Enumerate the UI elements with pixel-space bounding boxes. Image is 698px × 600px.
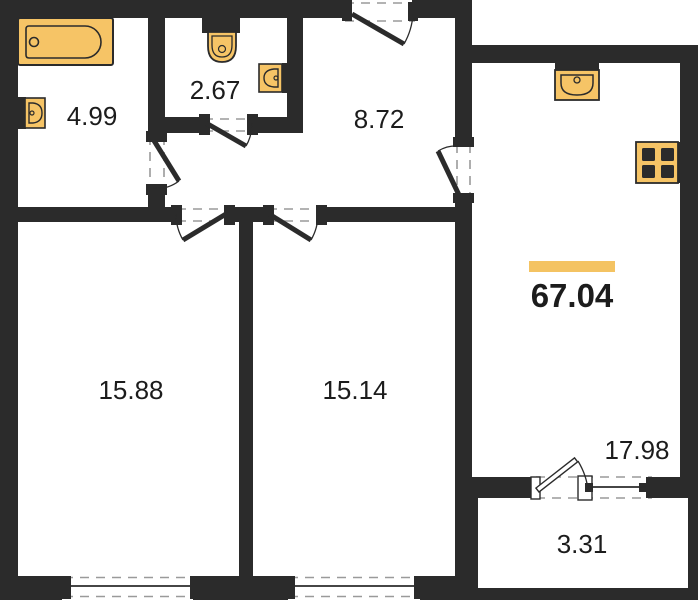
wall-sink-icon xyxy=(18,97,45,129)
window-post xyxy=(646,477,658,498)
room-label-bathroom: 4.99 xyxy=(67,101,118,131)
wall-segment xyxy=(148,117,203,133)
bathtub-icon xyxy=(18,18,113,65)
kitchen-door xyxy=(438,137,474,203)
room-label-room-left: 15.88 xyxy=(98,375,163,405)
room-label-wc: 2.67 xyxy=(190,75,241,105)
room-label-balcony: 3.31 xyxy=(557,529,608,559)
wall-segment xyxy=(253,117,303,133)
floor-plan-drawing: 4.99 2.67 8.72 15.88 15.14 17.98 3.31 67… xyxy=(0,0,698,600)
window-post xyxy=(414,576,426,599)
wall-segment xyxy=(193,576,288,600)
wall-segment xyxy=(680,45,698,478)
floor-plan: 4.99 2.67 8.72 15.88 15.14 17.98 3.31 67… xyxy=(0,0,698,600)
wall-segment xyxy=(472,477,535,498)
wall-segment xyxy=(239,222,253,576)
door-leaf xyxy=(269,214,311,240)
room-label-kitchen-living: 17.98 xyxy=(604,435,669,465)
wall-segment xyxy=(322,207,455,222)
bathroom-door xyxy=(146,131,179,195)
wall-segment xyxy=(455,195,472,478)
stove-burner xyxy=(661,165,674,178)
wc-sink-icon xyxy=(259,63,290,93)
room-left-door xyxy=(171,205,235,240)
door-leaf xyxy=(438,151,459,195)
stove-burner xyxy=(661,148,674,161)
window-post xyxy=(283,576,295,599)
room-middle-door xyxy=(263,205,327,240)
wall-segment xyxy=(688,478,698,600)
wc-door xyxy=(199,114,258,146)
room-label-room-middle: 15.14 xyxy=(322,375,387,405)
total-area-block: 67.04 xyxy=(529,261,615,314)
door-leaf xyxy=(183,214,226,240)
window-post xyxy=(59,576,71,599)
window-room-left xyxy=(59,576,202,599)
stove-burner xyxy=(642,165,655,178)
door-leaf xyxy=(352,14,404,44)
toilet-tank xyxy=(202,18,240,33)
wall-segment xyxy=(0,0,18,600)
balcony-door-leaf xyxy=(536,458,578,492)
wall-segment xyxy=(656,477,688,498)
wall-segment xyxy=(455,0,472,145)
window-post-nub xyxy=(585,483,593,492)
sink-mount xyxy=(282,63,290,93)
total-area-label: 67.04 xyxy=(531,277,614,314)
wall-segment xyxy=(0,0,352,18)
toilet-icon xyxy=(202,18,240,62)
door-leaf xyxy=(206,123,246,146)
door-jamb xyxy=(342,2,352,21)
wall-segment xyxy=(477,588,698,600)
accent-bar xyxy=(529,261,615,272)
window-post xyxy=(190,576,202,599)
entrance-door xyxy=(342,2,418,44)
door-leaf xyxy=(153,139,179,181)
sink-mount xyxy=(555,59,599,70)
wall-segment xyxy=(0,576,62,600)
stove-icon xyxy=(636,142,684,183)
kitchen-sink-icon xyxy=(555,59,599,100)
wall-segment xyxy=(18,207,177,222)
window-room-middle xyxy=(283,576,426,599)
stove-burner xyxy=(642,148,655,161)
door-jamb xyxy=(146,184,167,195)
room-label-hallway: 8.72 xyxy=(354,104,405,134)
